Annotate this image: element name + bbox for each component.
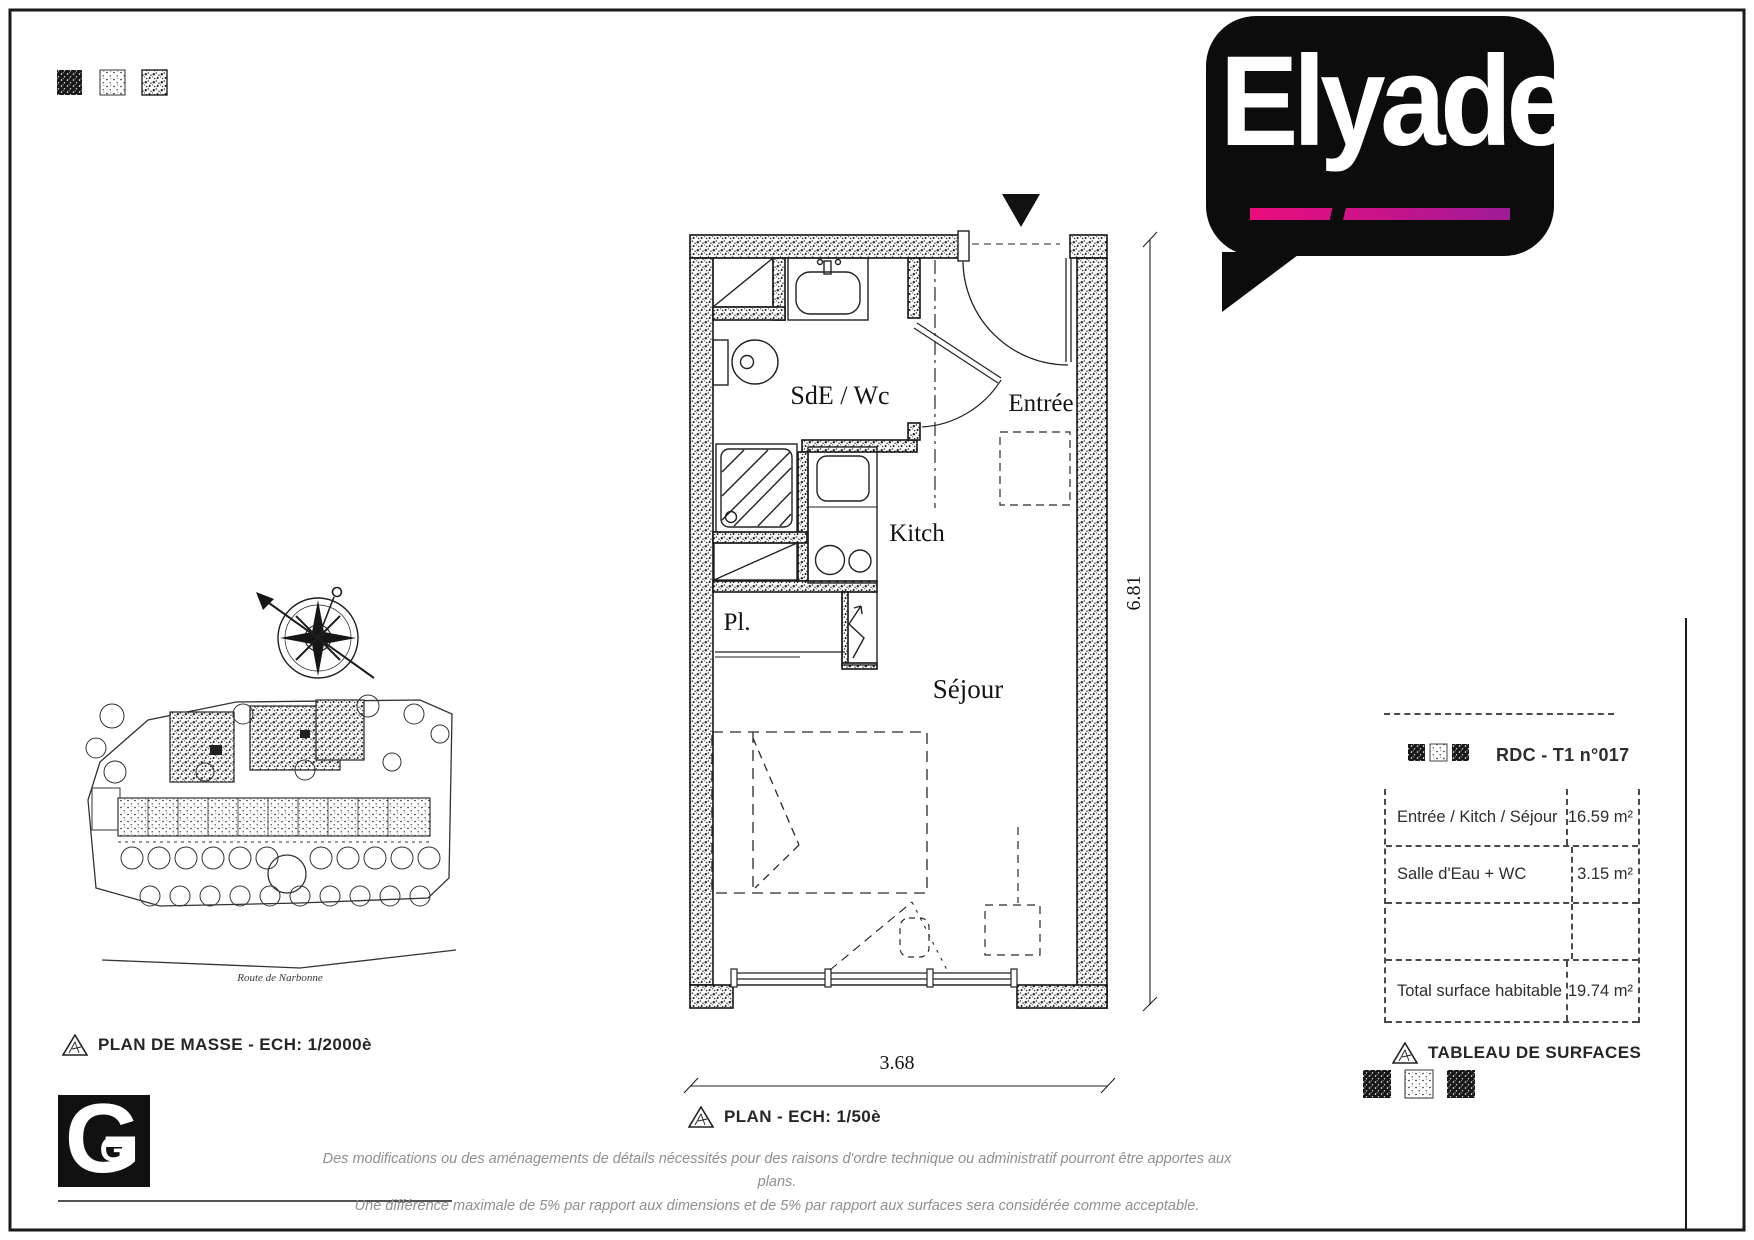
bed	[712, 732, 927, 893]
surface-table-caption-text: TABLEAU DE SURFACES	[1428, 1043, 1641, 1063]
row-label: Salle d'Eau + WC	[1386, 847, 1571, 902]
surface-table-caption: TABLEAU DE SURFACES	[1392, 1042, 1641, 1064]
table-row: Entrée / Kitch / Séjour 16.59 m²	[1386, 789, 1638, 847]
g-logo-small-letter: G	[100, 1131, 126, 1169]
total-label: Total surface habitable	[1386, 961, 1566, 1021]
surface-table: RDC - T1 n°017 Entrée / Kitch / Séjour 1…	[1384, 713, 1640, 1023]
room-label-kitchen: Kitch	[889, 520, 945, 547]
row-value	[1571, 904, 1638, 959]
row-label: Entrée / Kitch / Séjour	[1386, 789, 1566, 845]
triangle-icon	[62, 1034, 88, 1056]
brand-logo: Elyade	[1206, 16, 1554, 256]
row-value: 3.15 m²	[1571, 847, 1638, 902]
plan-sheet: G G	[0, 0, 1754, 1240]
window	[731, 902, 1017, 987]
desk-and-chair	[900, 827, 1040, 957]
registration-squares-bottom-right	[1363, 1070, 1475, 1098]
disclaimer-line-2: Une différence maximale de 5% par rappor…	[302, 1195, 1252, 1218]
bathroom-door	[914, 323, 1001, 427]
registration-squares-top-left	[57, 70, 167, 95]
triangle-icon	[1392, 1042, 1418, 1064]
table-row-total: Total surface habitable 19.74 m²	[1386, 961, 1638, 1023]
dimension-height-label: 6.81	[1123, 576, 1145, 611]
brand-logo-tail	[1222, 252, 1302, 312]
street-label: Route de Narbonne	[236, 972, 323, 984]
site-plan-caption-text: PLAN DE MASSE - ECH: 1/2000è	[98, 1035, 372, 1055]
room-label-living: Séjour	[933, 674, 1004, 704]
row-value: 16.59 m²	[1566, 789, 1638, 845]
site-plan-caption: PLAN DE MASSE - ECH: 1/2000è	[62, 1034, 372, 1056]
disclaimer-line-1: Des modifications ou des aménagements de…	[302, 1148, 1252, 1195]
room-label-bathroom: SdE / Wc	[790, 381, 889, 410]
entrance-door	[958, 231, 1071, 365]
total-value: 19.74 m²	[1566, 961, 1638, 1021]
disclaimer: Des modifications ou des aménagements de…	[302, 1148, 1252, 1218]
site-plan: Route de Narbonne	[86, 695, 456, 984]
triangle-icon	[688, 1106, 714, 1128]
compass-rose-icon	[256, 588, 374, 679]
room-label-entrance: Entrée	[1008, 390, 1073, 417]
surface-table-header: RDC - T1 n°017	[1384, 715, 1640, 789]
brand-name: Elyade	[1220, 38, 1540, 166]
entrance-marker-icon	[1002, 194, 1040, 227]
walls	[690, 235, 1107, 1008]
table-row-empty	[1386, 904, 1638, 961]
row-label	[1386, 904, 1571, 959]
brand-underline	[1250, 208, 1510, 220]
floor-plan-caption: PLAN - ECH: 1/50è	[688, 1106, 881, 1128]
room-label-closet: Pl.	[723, 609, 750, 636]
dimension-width-label: 3.68	[880, 1052, 915, 1074]
kitchen-fixtures	[808, 447, 877, 665]
floor-plan-caption-text: PLAN - ECH: 1/50è	[724, 1107, 881, 1127]
table-row: Salle d'Eau + WC 3.15 m²	[1386, 847, 1638, 904]
floor-plan: SdE / Wc Entrée Kitch Pl. Séjour 3.68 6.…	[684, 194, 1157, 1093]
closet-doors	[715, 652, 845, 657]
surface-table-title: RDC - T1 n°017	[1496, 745, 1629, 766]
zone-lines	[935, 260, 1070, 508]
